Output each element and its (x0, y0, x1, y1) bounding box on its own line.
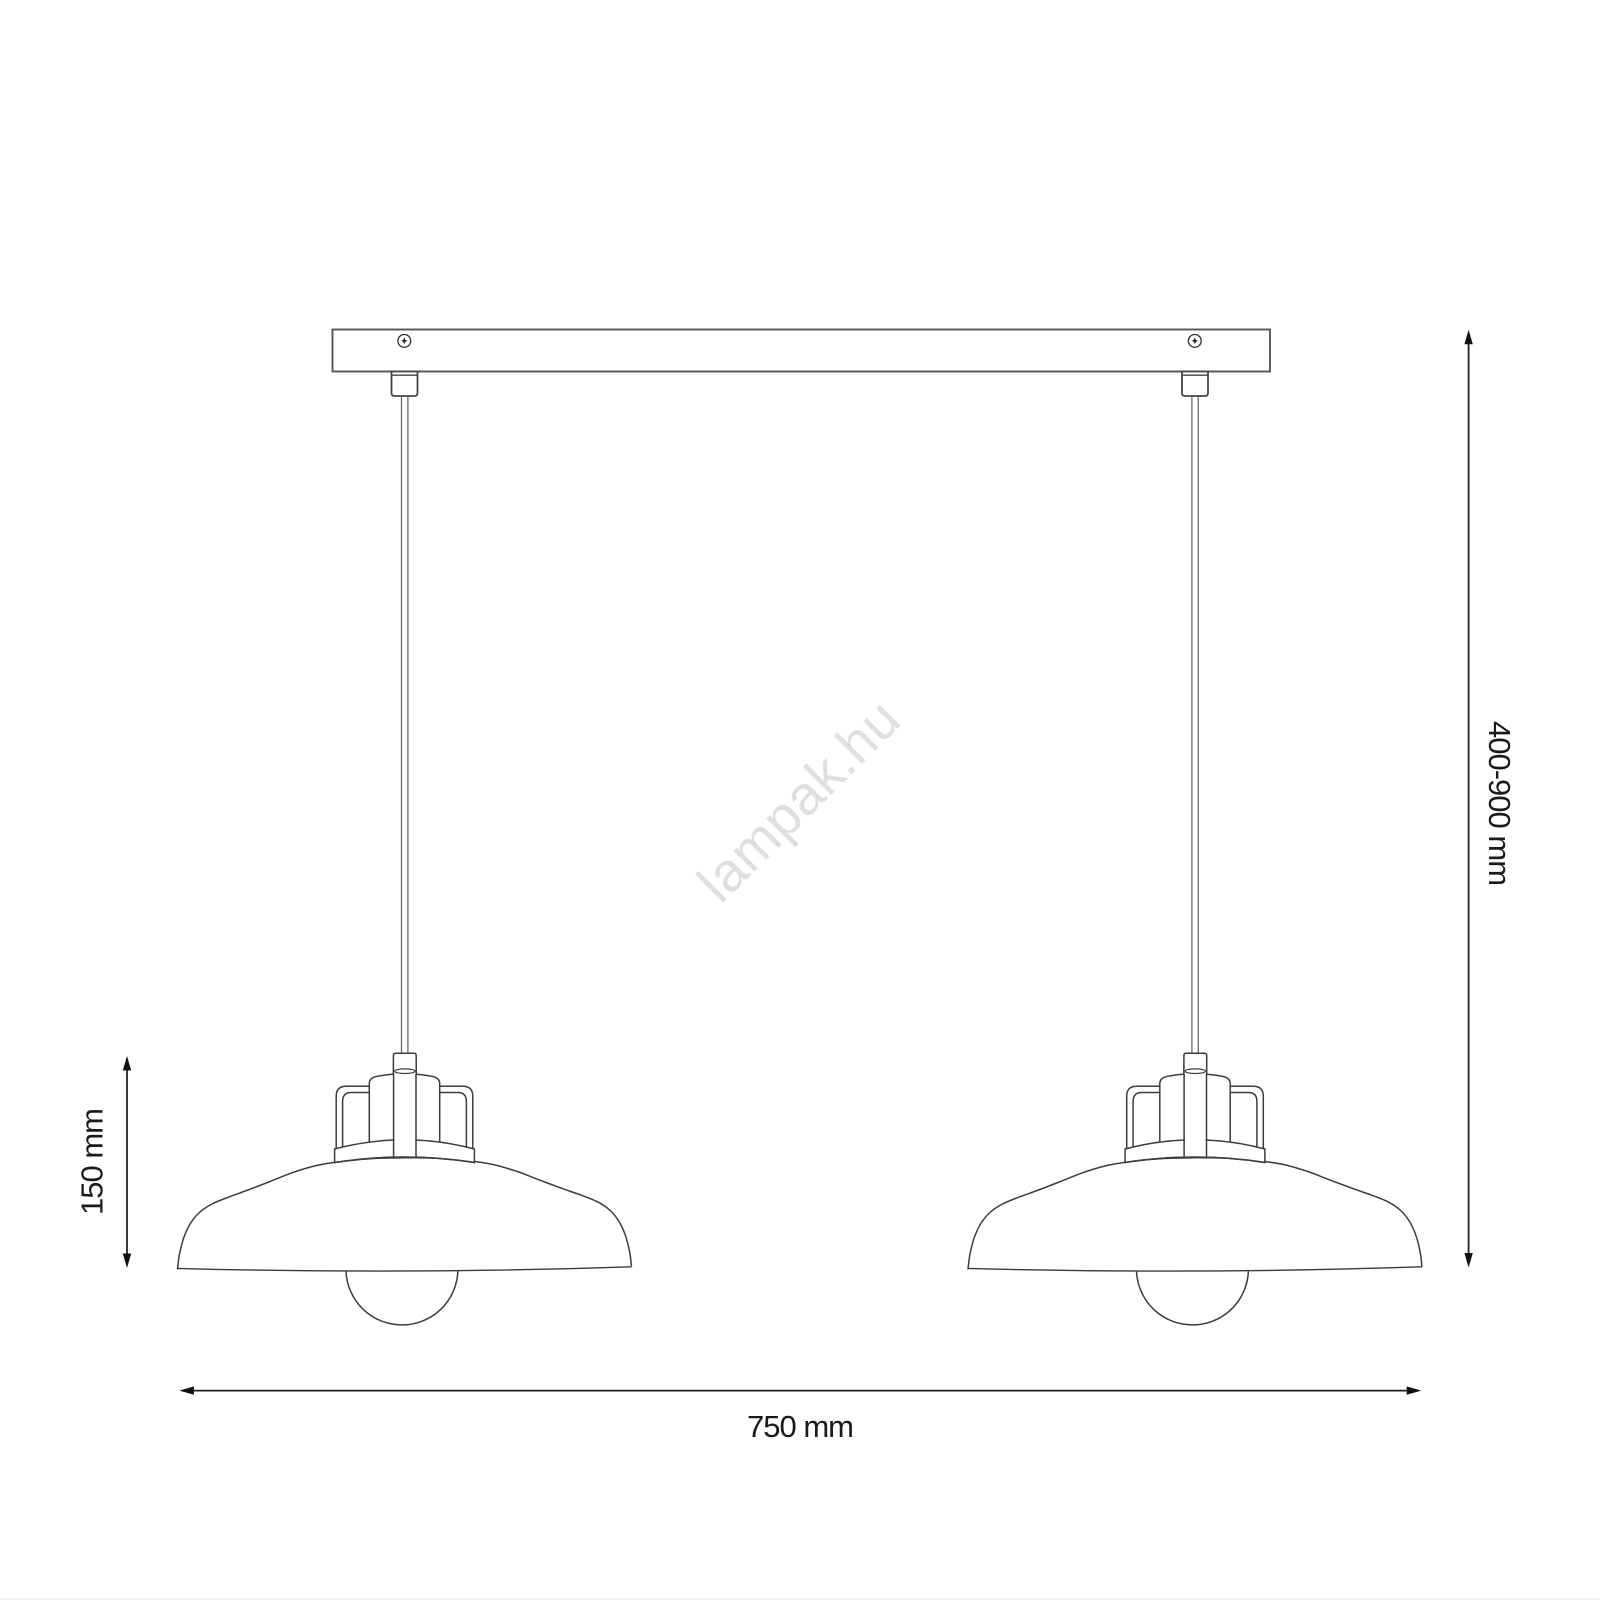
svg-text:400-900 mm: 400-900 mm (1482, 721, 1517, 885)
svg-text:750 mm: 750 mm (747, 1409, 853, 1444)
svg-text:150 mm: 150 mm (75, 1109, 110, 1215)
svg-text:lampak.hu: lampak.hu (685, 687, 911, 913)
